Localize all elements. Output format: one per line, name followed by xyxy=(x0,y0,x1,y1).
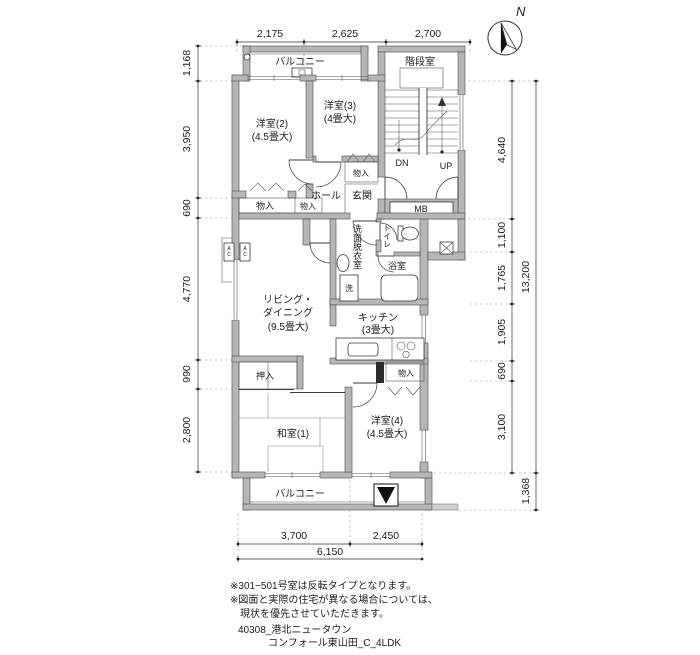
footer-line-1: 40308_港北ニュータウン xyxy=(238,624,351,636)
dim-right-3: 1,765 xyxy=(496,265,508,291)
toilet-icon xyxy=(398,226,419,241)
label-ac-1: AC xyxy=(226,246,232,258)
dim-bottom-1: 3,700 xyxy=(281,530,307,542)
drawing-title: 40308_港北ニュータウン コンフォール東山田_C_4LDK xyxy=(238,624,401,649)
label-bedroom4-size: (4.5畳大) xyxy=(367,427,408,440)
floor-plan-page: 2,175 2,625 2,700 1,168 3,950 690 4,770 … xyxy=(0,0,700,650)
dim-left-3: 690 xyxy=(181,199,193,217)
label-living-1: リビング・ xyxy=(263,293,313,306)
dim-left-4: 4,770 xyxy=(181,276,193,302)
note-line-3: 現状を優先させていただきます。 xyxy=(240,607,389,620)
evacuation-hatch-icon xyxy=(374,484,398,506)
label-closet-b2-large: 物入 xyxy=(256,200,274,211)
fixtures xyxy=(222,226,424,360)
dim-right-6: 3,100 xyxy=(496,414,508,440)
label-ac-2: AC xyxy=(242,246,248,258)
dim-top-1: 2,175 xyxy=(257,28,283,40)
label-closet-b4: 物入 xyxy=(398,368,414,378)
label-stairwell: 階段室 xyxy=(405,55,435,68)
dim-right-total: 13,200 xyxy=(520,261,532,293)
label-washer: 洗 xyxy=(345,283,353,293)
shaft-icon xyxy=(440,242,453,254)
label-hall: ホール xyxy=(311,190,341,202)
label-bedroom3-size: (4畳大) xyxy=(324,112,356,125)
north-arrow-icon: N xyxy=(484,4,526,59)
dim-right-5: 690 xyxy=(496,362,508,380)
label-bedroom2-size: (4.5畳大) xyxy=(252,130,293,143)
label-closet-b2-small: 物入 xyxy=(300,201,316,211)
dim-right-2: 1,100 xyxy=(496,222,508,248)
label-entrance: 玄関 xyxy=(352,189,372,202)
label-bedroom3-name: 洋室(3) xyxy=(324,99,356,112)
sink-icon xyxy=(337,255,349,272)
label-kitchen-size: (3畳大) xyxy=(362,323,394,336)
label-bedroom4-name: 洋室(4) xyxy=(371,414,403,427)
label-washroom: 洗面脱衣室 xyxy=(352,223,362,269)
label-living-2: ダイニング xyxy=(263,306,313,319)
note-line-2: ※図面と実際の住宅が異なる場合については、 xyxy=(230,593,438,606)
dim-top-2: 2,625 xyxy=(332,28,358,40)
dim-left-6: 2,800 xyxy=(181,417,193,443)
dim-left-2: 3,950 xyxy=(181,126,193,152)
dim-bottom-2: 2,450 xyxy=(373,530,399,542)
footer-line-2: コンフォール東山田_C_4LDK xyxy=(268,636,401,649)
bathtub-icon xyxy=(381,275,418,301)
dim-right-1: 4,640 xyxy=(496,137,508,163)
label-toilet: トイレ xyxy=(383,224,392,248)
room-labels: バルコニー 階段室 DN UP 洋室(2) (4.5畳大) 洋室(3) (4畳大… xyxy=(226,55,452,500)
label-bath: 浴室 xyxy=(388,260,406,271)
label-north: N xyxy=(516,4,526,19)
label-up: UP xyxy=(440,161,453,171)
dim-right-balcony: 1,368 xyxy=(520,478,532,504)
notes: ※301~501号室は反転タイプとなります。 ※図面と実際の住宅が異なる場合につ… xyxy=(230,579,438,620)
label-oshiire: 押入 xyxy=(256,370,274,381)
label-balcony-top: バルコニー xyxy=(275,56,325,68)
dim-left-1: 1,168 xyxy=(181,50,193,76)
label-closet-hall: 物入 xyxy=(353,168,369,178)
dim-left-5: 990 xyxy=(181,365,193,383)
floor-plan-drawing: 2,175 2,625 2,700 1,168 3,950 690 4,770 … xyxy=(0,0,700,650)
label-bedroom2-name: 洋室(2) xyxy=(256,117,288,130)
label-mb: MB xyxy=(414,204,428,214)
kitchen-counter-icon xyxy=(336,338,424,360)
label-kitchen-name: キッチン xyxy=(358,312,398,324)
dim-right-4: 1,905 xyxy=(496,319,508,345)
dim-bottom-total: 6,150 xyxy=(317,546,343,558)
label-washitsu: 和室(1) xyxy=(277,427,309,440)
label-living-size: (9.5畳大) xyxy=(268,320,309,333)
label-dn: DN xyxy=(396,158,409,168)
label-balcony-bottom: バルコニー xyxy=(275,488,325,500)
dim-top-3: 2,700 xyxy=(415,28,441,40)
note-line-1: ※301~501号室は反転タイプとなります。 xyxy=(230,579,416,592)
